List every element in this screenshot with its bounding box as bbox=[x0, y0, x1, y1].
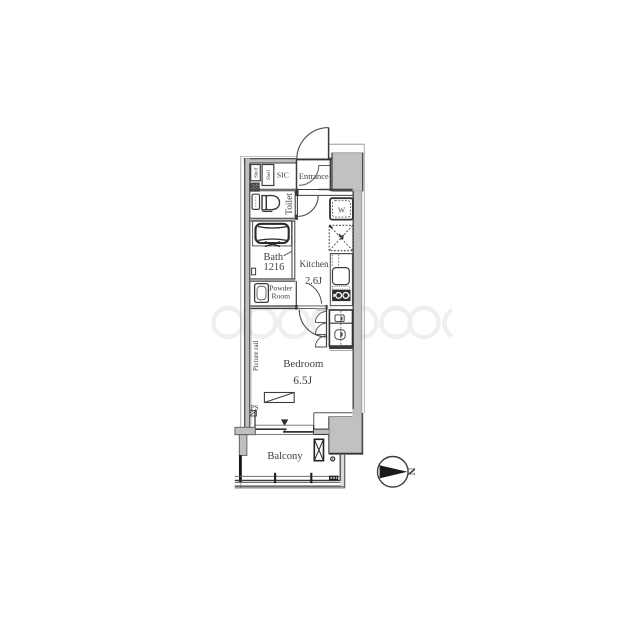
svg-text:Picture rail: Picture rail bbox=[253, 341, 260, 372]
svg-text:1216: 1216 bbox=[264, 262, 285, 273]
svg-text:W: W bbox=[338, 205, 346, 214]
svg-text:2.6J: 2.6J bbox=[305, 276, 322, 287]
svg-text:Toilet: Toilet bbox=[285, 193, 295, 215]
svg-text:Shelf: Shelf bbox=[267, 169, 272, 180]
svg-text:Shelf: Shelf bbox=[254, 167, 259, 178]
svg-text:N: N bbox=[405, 468, 417, 476]
svg-text:Entrance: Entrance bbox=[299, 172, 329, 181]
svg-text:Kitchen: Kitchen bbox=[299, 259, 328, 269]
svg-text:Room: Room bbox=[272, 292, 291, 301]
svg-text:6.5J: 6.5J bbox=[293, 374, 312, 387]
svg-text:Bedroom: Bedroom bbox=[283, 358, 324, 370]
svg-text:SIC: SIC bbox=[277, 171, 289, 180]
svg-text:Balcony: Balcony bbox=[267, 451, 303, 462]
